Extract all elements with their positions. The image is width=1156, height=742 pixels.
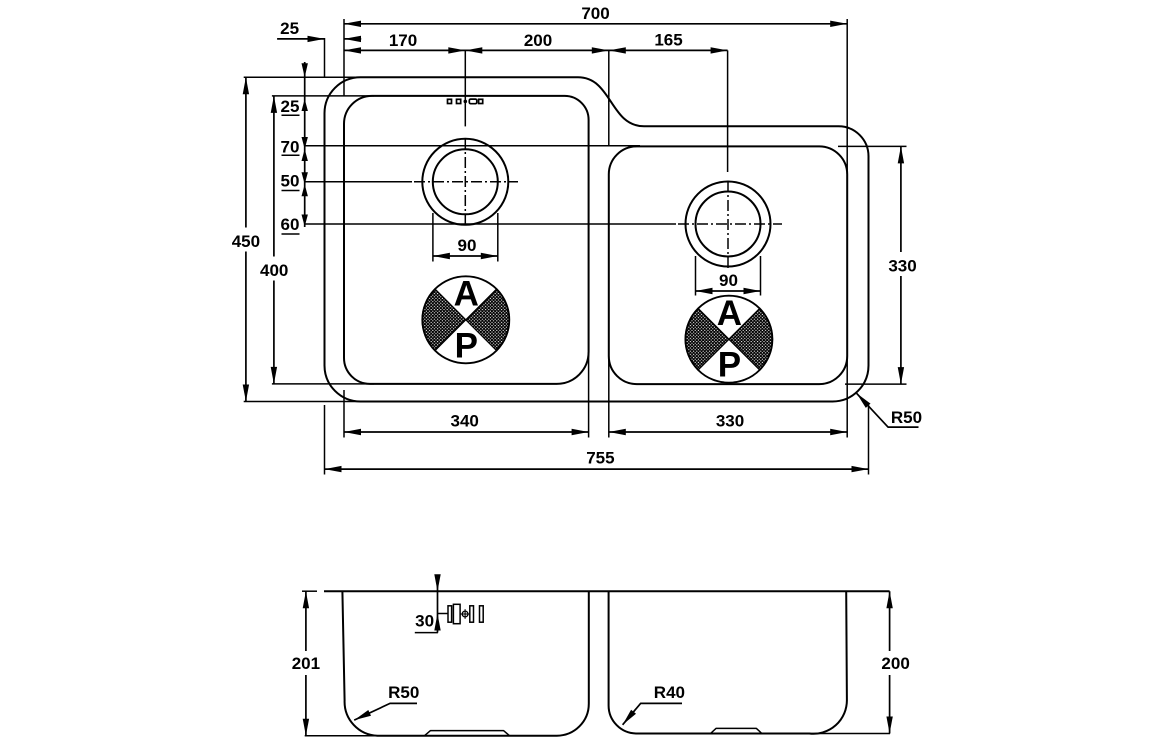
- svg-text:90: 90: [719, 271, 738, 290]
- svg-text:340: 340: [451, 412, 479, 431]
- svg-text:201: 201: [292, 654, 320, 673]
- svg-text:50: 50: [281, 172, 300, 191]
- svg-text:R50: R50: [388, 683, 419, 702]
- svg-text:170: 170: [389, 31, 417, 50]
- svg-text:70: 70: [281, 138, 300, 157]
- svg-text:R50: R50: [891, 408, 922, 427]
- svg-text:200: 200: [524, 31, 552, 50]
- svg-text:755: 755: [586, 449, 614, 468]
- svg-text:P: P: [718, 346, 741, 385]
- svg-text:A: A: [454, 275, 479, 314]
- svg-text:400: 400: [260, 261, 288, 280]
- svg-text:90: 90: [458, 236, 477, 255]
- svg-text:200: 200: [881, 654, 909, 673]
- svg-text:25: 25: [281, 97, 300, 116]
- svg-text:165: 165: [654, 31, 682, 50]
- svg-text:30: 30: [415, 612, 434, 631]
- svg-text:60: 60: [281, 215, 300, 234]
- svg-text:P: P: [455, 326, 478, 365]
- svg-text:25: 25: [280, 19, 299, 38]
- svg-text:R40: R40: [654, 683, 685, 702]
- svg-text:330: 330: [716, 412, 744, 431]
- svg-text:A: A: [717, 294, 742, 333]
- svg-text:700: 700: [581, 4, 609, 23]
- svg-text:330: 330: [888, 257, 916, 276]
- svg-text:450: 450: [232, 232, 260, 251]
